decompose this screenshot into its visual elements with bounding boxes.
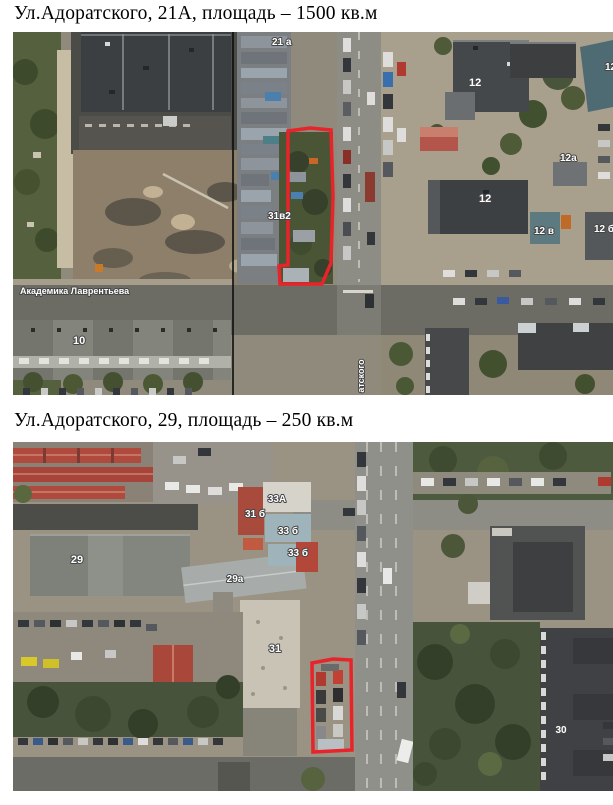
building-label-21a: 21 а — [272, 37, 292, 48]
street-label-adoratskogo: атского — [356, 359, 366, 393]
building-label-30: 30 — [555, 725, 567, 736]
building-12-mid — [428, 180, 528, 234]
road-adoratskogo-vertical-2 — [355, 442, 413, 791]
building-red-roof — [420, 127, 458, 151]
satellite-map-29: 33А 31 б 33 б 33 б 29 29а 31 30 — [13, 442, 613, 791]
building-label-12v: 12 в — [534, 226, 554, 237]
building-label-29a: 29а — [227, 574, 244, 585]
building-10 — [13, 320, 231, 380]
caption-plot-29: Ул.Адоратского, 29, площадь – 250 кв.м — [14, 410, 353, 432]
building-29 — [30, 534, 190, 596]
building-label-12-mid: 12 — [479, 193, 491, 205]
building-label-31v2: 31в2 — [268, 211, 291, 222]
building-12b — [585, 212, 613, 260]
street-label-lavrentyeva: Академика Лаврентьева — [20, 286, 130, 296]
trees-right-mass — [413, 622, 540, 791]
building-label-12b: 12 б — [594, 223, 613, 235]
building-30 — [540, 628, 613, 791]
satellite-map-21a: 21 а 31в2 12 12 12 12а 12 в 12 б 10 Акад… — [13, 32, 613, 395]
building-label-12-right: 12 — [605, 62, 613, 73]
building-label-29: 29 — [71, 554, 83, 566]
building-12a — [553, 162, 587, 186]
building-label-12-top: 12 — [469, 77, 481, 89]
building-label-33b: 33 б — [278, 525, 298, 537]
caption-plot-21a: Ул.Адоратского, 21А, площадь – 1500 кв.м — [14, 3, 378, 25]
parking-rows — [79, 116, 231, 150]
building-label-10: 10 — [73, 335, 85, 347]
building-label-31: 31 — [269, 643, 281, 655]
building-label-12a: 12а — [560, 153, 577, 164]
building-label-31b: 31 б — [245, 508, 265, 520]
document-page: { "page": { "background": "#ffffff", "te… — [0, 0, 613, 805]
shadow-strip — [13, 504, 198, 530]
building-neighbor-top — [510, 42, 576, 78]
satellite-map-21a-image: 21 а 31в2 12 12 12 12а 12 в 12 б 10 Акад… — [13, 32, 613, 395]
garages-red-roof — [13, 442, 153, 503]
building-label-33a: 33А — [268, 494, 286, 505]
satellite-map-29-image: 33А 31 б 33 б 33 б 29 29а 31 30 — [13, 442, 613, 791]
building-label-33b-2: 33 б — [288, 547, 308, 559]
